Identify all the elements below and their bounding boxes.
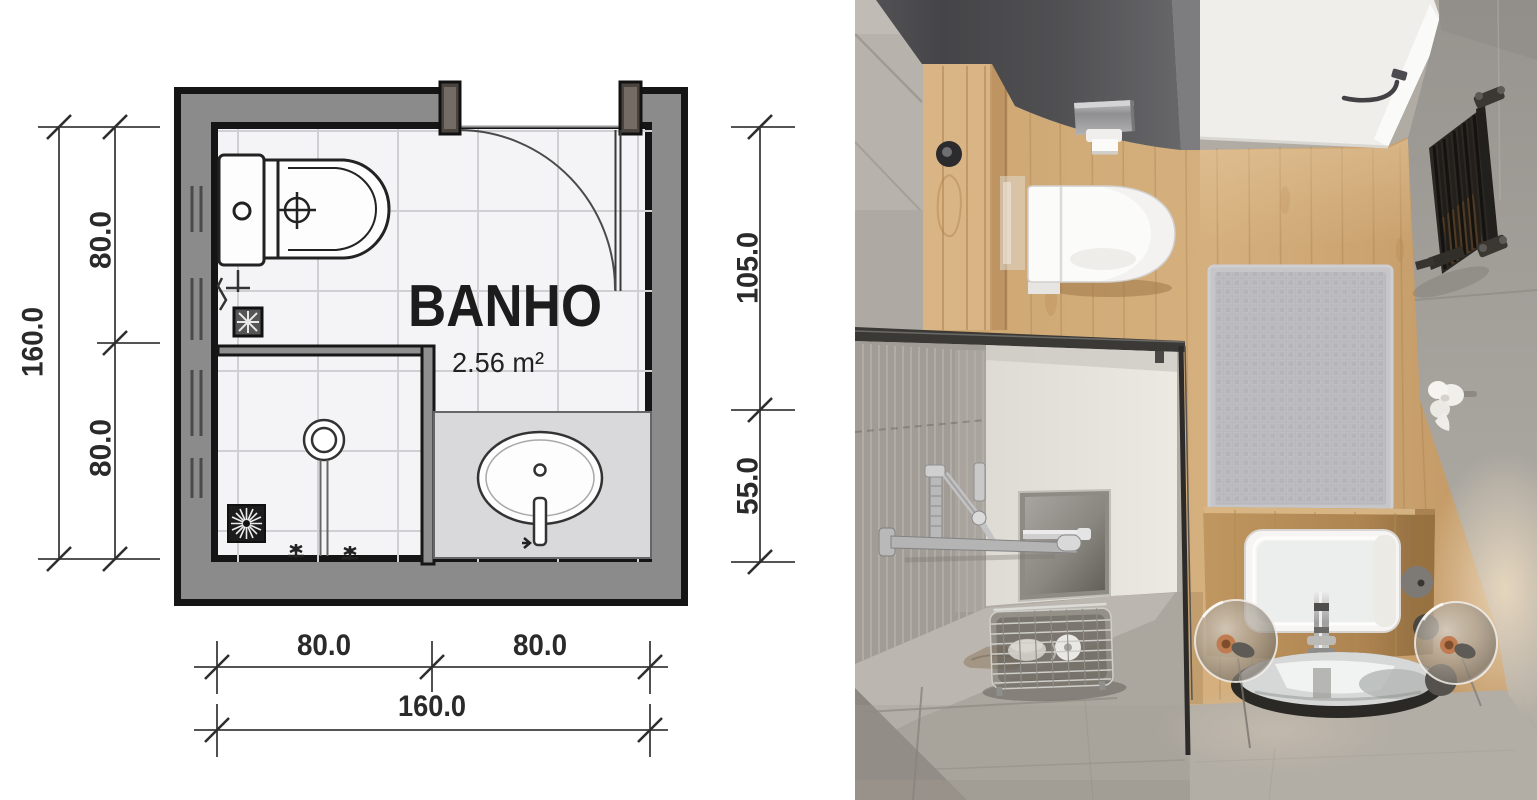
svg-text:80.0: 80.0 bbox=[85, 419, 118, 477]
svg-text:160.0: 160.0 bbox=[17, 307, 50, 377]
svg-text:80.0: 80.0 bbox=[297, 629, 351, 662]
svg-text:80.0: 80.0 bbox=[85, 211, 118, 269]
svg-text:BANHO: BANHO bbox=[408, 273, 602, 339]
svg-text:160.0: 160.0 bbox=[398, 690, 466, 723]
svg-text:105.0: 105.0 bbox=[732, 232, 765, 304]
svg-text:2.56 m²: 2.56 m² bbox=[452, 347, 544, 378]
svg-text:55.0: 55.0 bbox=[732, 457, 765, 515]
svg-text:80.0: 80.0 bbox=[513, 629, 567, 662]
